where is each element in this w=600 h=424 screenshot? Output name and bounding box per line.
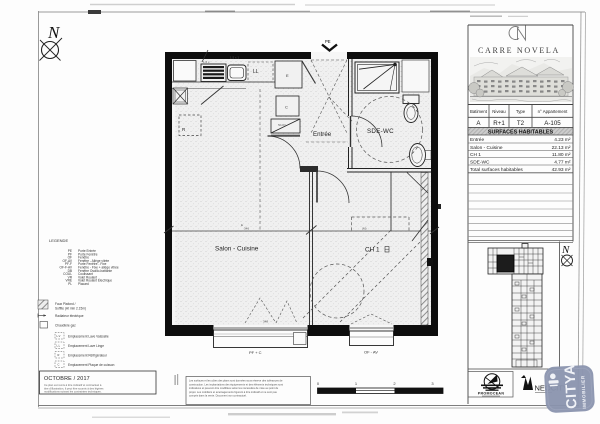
svg-text:CH 1: CH 1 [470, 152, 481, 158]
svg-text:Niveau: Niveau [492, 109, 506, 114]
svg-text:R: R [58, 353, 60, 357]
svg-text:Entrée: Entrée [313, 131, 332, 138]
svg-text:(M): (M) [362, 227, 367, 231]
svg-text:SDE-WC: SDE-WC [470, 159, 490, 165]
svg-text:Les surfaces et les côtes des: Les surfaces et les côtes des plans sont… [189, 379, 283, 383]
svg-text:348: 348 [263, 320, 268, 324]
svg-text:1: 1 [355, 381, 358, 386]
svg-text:Chaudière gaz: Chaudière gaz [55, 324, 76, 328]
svg-text:N: N [561, 244, 570, 256]
svg-text:Faux Plafond /: Faux Plafond / [55, 302, 76, 306]
svg-text:n° Appartement: n° Appartement [538, 109, 568, 114]
svg-text:C: C [285, 105, 288, 110]
svg-text:Placard: Placard [78, 282, 89, 286]
svg-text:Salon - Cuisine: Salon - Cuisine [215, 246, 259, 253]
svg-text:Total surfaces habitables: Total surfaces habitables [470, 167, 523, 173]
svg-text:N: N [47, 23, 61, 42]
svg-text:2: 2 [393, 381, 396, 386]
svg-text:Radiateur électrique: Radiateur électrique [55, 314, 84, 318]
svg-text:22.13 m²: 22.13 m² [552, 145, 571, 151]
svg-text:Emplacement Lave Linge: Emplacement Lave Linge [68, 344, 104, 348]
svg-text:0: 0 [317, 381, 320, 386]
svg-text:Type: Type [516, 109, 526, 114]
svg-text:SURFACES HABITABLES: SURFACES HABITABLES [488, 130, 554, 136]
svg-text:CITYA: CITYA [562, 364, 580, 409]
svg-text:Emplacement Lave Vaisselle: Emplacement Lave Vaisselle [68, 335, 109, 339]
svg-text:E: E [241, 223, 243, 227]
svg-text:PE: PE [325, 39, 331, 44]
svg-text:A: A [476, 120, 481, 127]
svg-text:11.80 m²: 11.80 m² [552, 152, 571, 158]
svg-text:OF - AV: OF - AV [364, 350, 378, 355]
svg-text:Entrée: Entrée [470, 137, 484, 143]
svg-text:PL: PL [68, 282, 72, 286]
svg-text:indicatives et peuvent être mo: indicatives et peuvent être modifiées se… [189, 386, 279, 390]
svg-text:OCTOBRE / 2017: OCTOBRE / 2017 [44, 376, 90, 382]
svg-text:R+1: R+1 [493, 120, 505, 127]
svg-text:C: C [58, 363, 60, 367]
svg-text:A-105: A-105 [544, 120, 561, 127]
svg-text:Salon - Cuisine: Salon - Cuisine [470, 145, 503, 151]
svg-text:Soffite (Ht min 2.15m): Soffite (Ht min 2.15m) [55, 307, 86, 311]
svg-text:4.77 m²: 4.77 m² [554, 159, 571, 165]
svg-text:42.93 m²: 42.93 m² [552, 167, 571, 173]
svg-text:L.L: L.L [57, 344, 61, 348]
svg-text:3: 3 [431, 381, 434, 386]
svg-text:346: 346 [244, 227, 249, 231]
svg-text:construction. Les implantation: construction. Les implantations des équi… [189, 382, 283, 386]
svg-text:1.6 x: 1.6 x [203, 60, 210, 64]
svg-text:CARRE NOVELA: CARRE NOVELA [478, 46, 560, 55]
svg-text:projet. Les mobiliers et aména: projet. Les mobiliers et aménagements fi… [189, 390, 278, 394]
svg-text:PF + C: PF + C [249, 350, 262, 355]
svg-text:modifications suivant les cont: modifications suivant les contraintes te… [44, 390, 102, 394]
svg-text:PROMOCEAN: PROMOCEAN [478, 392, 505, 396]
svg-text:SDE-WC: SDE-WC [367, 128, 394, 135]
svg-text:50x60: 50x60 [278, 123, 286, 127]
svg-text:compris dans la vente. Documen: compris dans la vente. Document non cont… [189, 394, 247, 398]
svg-text:CH 1: CH 1 [365, 247, 380, 254]
svg-text:LEGENDE: LEGENDE [49, 238, 68, 243]
svg-text:1.5 x 1: 1.5 x 1 [230, 56, 239, 60]
svg-text:Emplacement Réfrigérateur: Emplacement Réfrigérateur [68, 354, 108, 358]
svg-text:Batiment: Batiment [470, 109, 488, 114]
svg-text:LL: LL [253, 69, 259, 75]
svg-text:Emplacement Plaque de cuisson: Emplacement Plaque de cuisson [68, 363, 115, 367]
svg-text:4.23 m²: 4.23 m² [554, 137, 571, 143]
svg-text:T2: T2 [517, 120, 525, 127]
svg-text:L.V: L.V [57, 334, 61, 338]
svg-text:E: E [286, 73, 289, 78]
